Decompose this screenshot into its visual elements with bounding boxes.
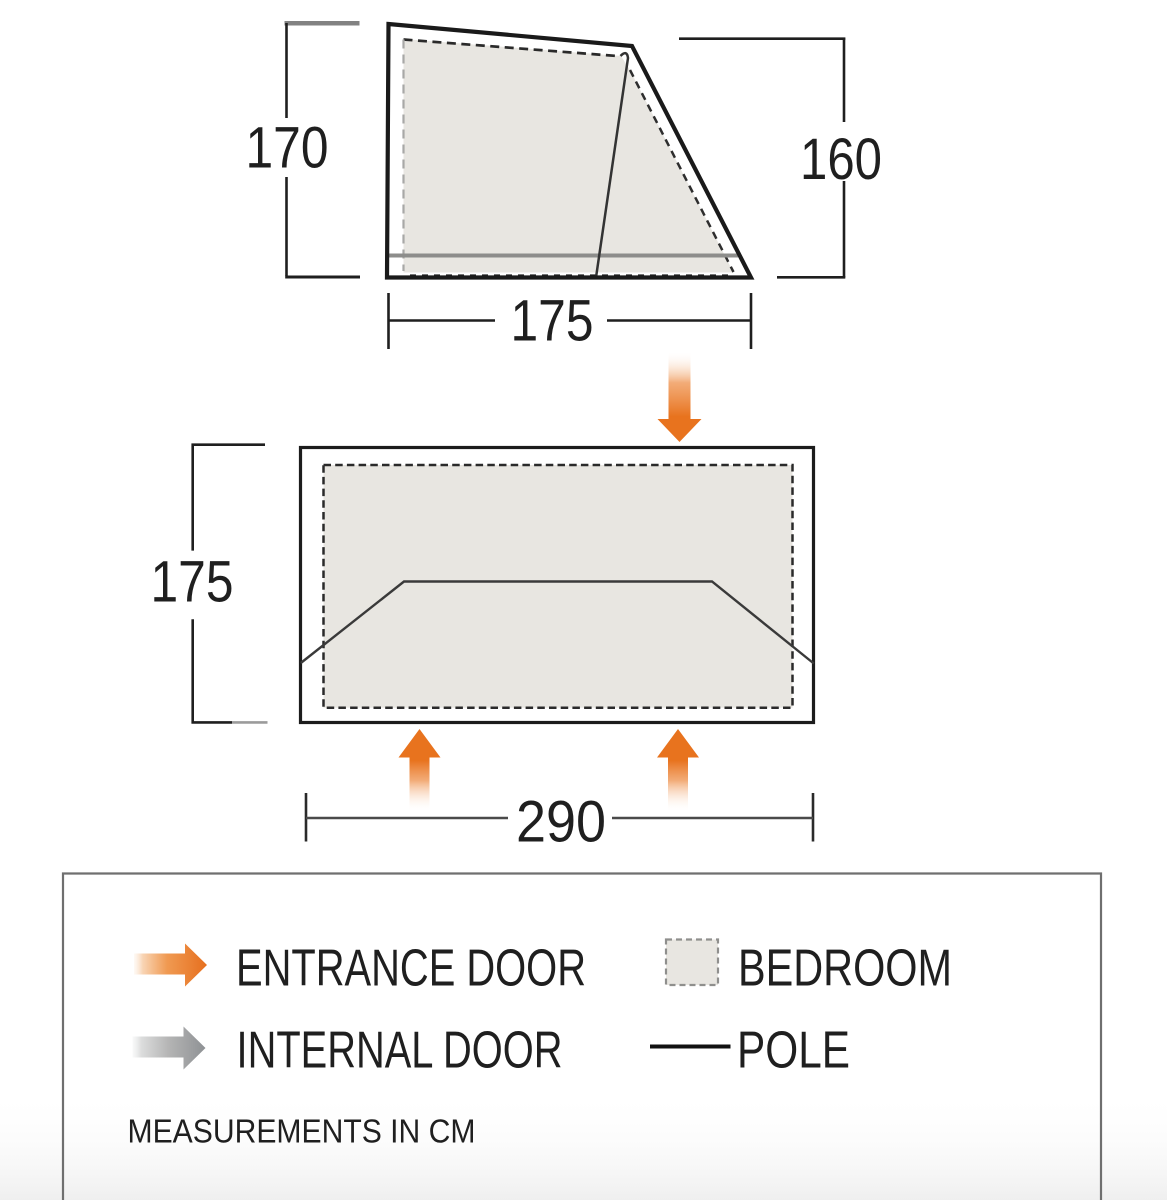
svg-text:175: 175	[151, 550, 234, 615]
svg-text:POLE: POLE	[737, 1022, 850, 1080]
svg-text:MEASUREMENTS IN CM: MEASUREMENTS IN CM	[128, 1113, 476, 1150]
svg-text:175: 175	[511, 289, 594, 354]
svg-text:BEDROOM: BEDROOM	[738, 940, 952, 998]
svg-text:160: 160	[800, 127, 882, 192]
svg-text:170: 170	[246, 116, 329, 181]
svg-text:INTERNAL DOOR: INTERNAL DOOR	[237, 1022, 563, 1080]
svg-text:ENTRANCE DOOR: ENTRANCE DOOR	[236, 940, 586, 998]
svg-text:290: 290	[516, 790, 606, 855]
